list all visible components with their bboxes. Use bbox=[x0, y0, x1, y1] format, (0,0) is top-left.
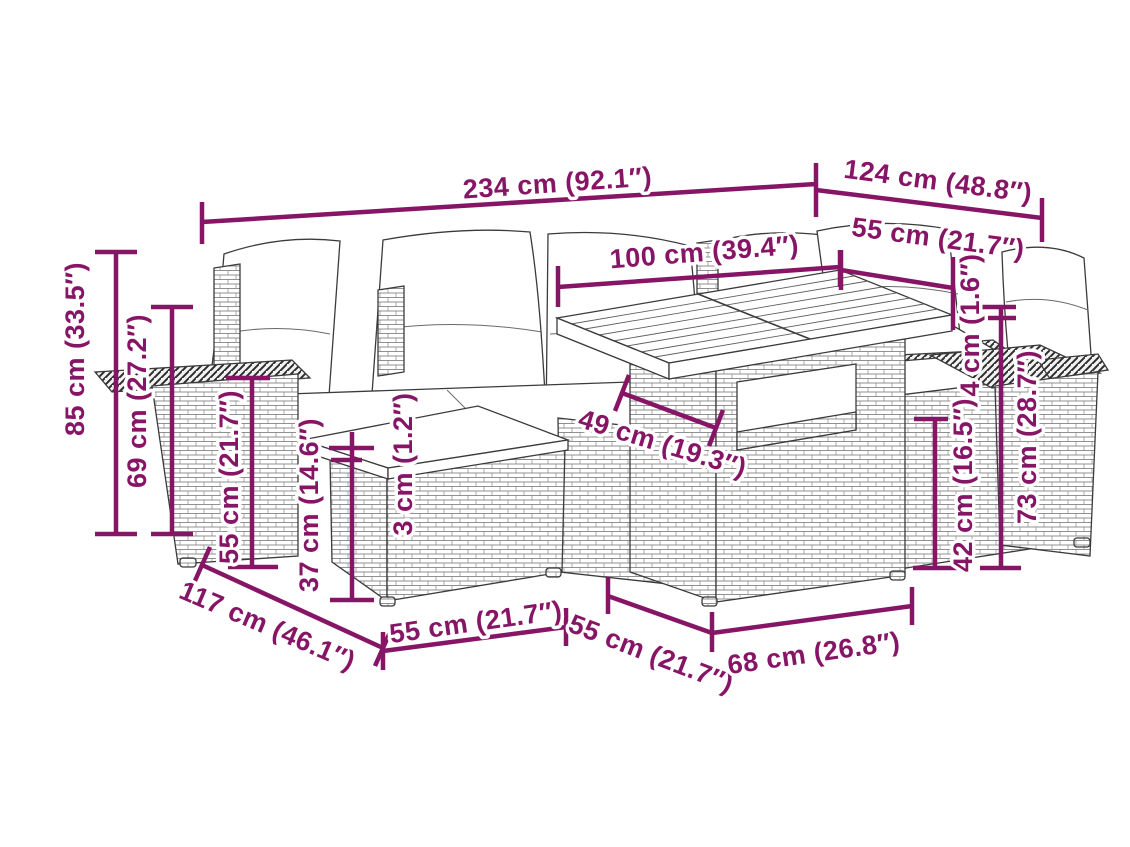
dimension-label-cushion-thickness: 3 cm (1.2″) bbox=[388, 393, 418, 536]
table-left-face bbox=[630, 350, 716, 602]
table-foot bbox=[702, 597, 717, 606]
dimension-diagram-page: 234 cm (92.1″) 124 cm (48.8″) 55 cm (21.… bbox=[0, 0, 1130, 847]
table-foot bbox=[890, 571, 905, 580]
dimension-label-table-clearance: 42 cm (16.5″) bbox=[948, 398, 978, 572]
dimension-label-tabletop-thickness: 4 cm (1.6″) bbox=[955, 254, 985, 397]
ottoman bbox=[302, 406, 568, 606]
dimension-label-ottoman-height: 37 cm (14.6″) bbox=[294, 418, 324, 592]
dimension-table-base-width: 68 cm (26.8″) bbox=[712, 587, 912, 680]
right-armrest-side bbox=[995, 372, 1098, 556]
dimension-label-table-height: 73 cm (28.7″) bbox=[1012, 350, 1042, 524]
dimension-ottoman-width: 55 cm (21.7″) bbox=[383, 595, 566, 670]
ottoman-foot bbox=[380, 597, 395, 606]
furniture-dimension-diagram: 234 cm (92.1″) 124 cm (48.8″) 55 cm (21.… bbox=[0, 0, 1130, 847]
dimension-label-armrest-height: 55 cm (21.7″) bbox=[214, 390, 244, 564]
ottoman-left-face bbox=[330, 458, 387, 601]
dimension-label-depth-right: 124 cm (48.8″) bbox=[842, 154, 1034, 208]
dimension-label-back-height: 69 cm (27.2″) bbox=[122, 314, 152, 488]
armrest-foot bbox=[180, 558, 196, 567]
ottoman-foot bbox=[546, 568, 561, 577]
dimension-label-table-base-width: 68 cm (26.8″) bbox=[725, 626, 902, 680]
dimension-label-overall-height: 85 cm (33.5″) bbox=[60, 262, 90, 436]
frame-post bbox=[378, 286, 404, 376]
sofa-foot bbox=[1074, 538, 1090, 547]
